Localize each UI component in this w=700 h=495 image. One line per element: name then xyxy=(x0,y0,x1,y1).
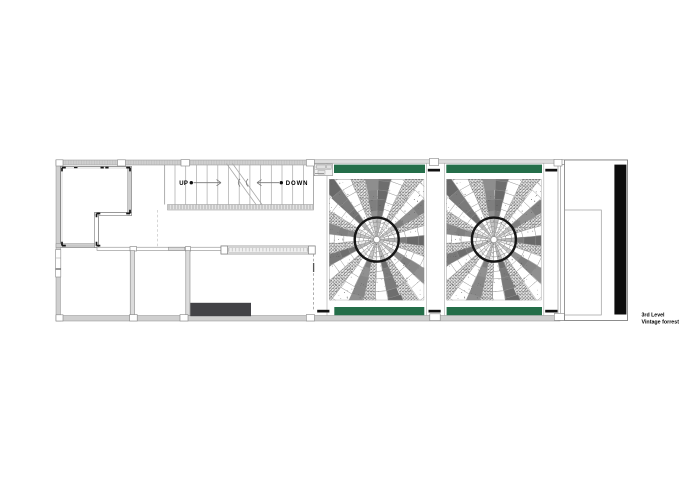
svg-text:DOWN: DOWN xyxy=(286,181,309,187)
svg-text:Vintage forrest: Vintage forrest xyxy=(642,319,680,325)
svg-text:UP: UP xyxy=(179,181,188,187)
svg-text:3rd Level: 3rd Level xyxy=(642,312,666,318)
